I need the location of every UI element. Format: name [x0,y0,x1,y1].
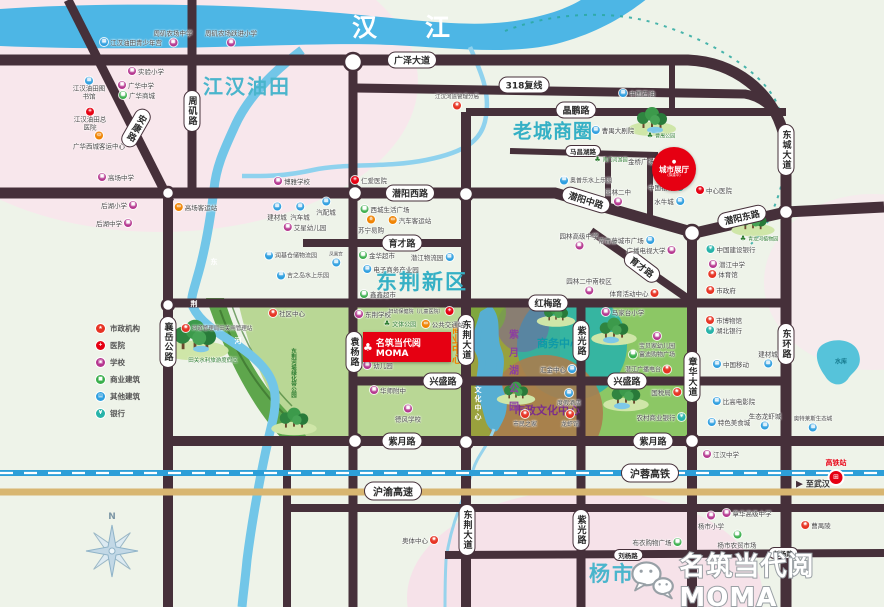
poi-label: 体育馆 [718,269,738,279]
poi-gov: 潜江广播电台★ [625,365,671,374]
poi-bus: ▭广华西城客运中心 [73,132,125,151]
area-label: 汉江 [352,8,498,44]
direction-arrow-icon: ▶ [796,479,803,489]
area-label: 河 [235,336,242,346]
poi-park: ♣文体公园 [384,320,416,329]
gov-icon: ★ [706,286,714,294]
park-icon: ♣ [384,321,390,328]
poi-com: ■广华商城 [119,90,155,100]
poi-oth: 建材城▤ [758,349,778,368]
poi-label: 周矶农场中学 [154,28,193,38]
area-label: 文化中心 [473,386,483,422]
poi-label: 杨市小学 [698,521,724,531]
sch-icon: ▣ [404,405,412,413]
poi-oth: 潜江物流园▤ [411,252,454,262]
poi-sch: ▣章华高级中学 [723,508,772,518]
legend-item: ★市政机构 [96,320,140,337]
poi-label: 公共交通站 [432,319,465,329]
poi-hosp: +江汉油田总医院 [71,108,109,133]
road-label: 育才路 [381,235,422,252]
poi-oth: ▤汽车城 [290,203,310,222]
oth-icon: ▤ [296,203,304,211]
poi-label: 市政府 [716,285,736,295]
poi-label: 奥体中心 [402,535,428,545]
direction-to-wuhan: ▶ 至武汉 [796,479,830,490]
poi-gov: 江汉河道管理分局★ [435,93,479,110]
road-label: 紫月路 [632,433,673,450]
oth-icon: ▤ [332,259,340,267]
road-label: 紫光路 [573,320,590,362]
poi-label: 广华商城 [129,90,155,100]
legend-label: 市政机构 [110,323,140,334]
gov-icon: ★ [706,316,714,324]
poi-sch: 园林二中南校区▣ [566,276,612,295]
bank-icon: ¥ [707,245,715,253]
oth-icon: ▤ [646,236,654,244]
poi-label: 湖北银行 [716,325,742,335]
poi-label: 金华超市 [369,250,395,260]
poi-gov: ★龙虾馆 [561,410,579,428]
poi-label: 比高电影院 [723,396,756,406]
poi-gov: ★市政府 [706,285,736,295]
road-label: 东城大道 [778,124,795,176]
poi-label: 华师附中 [380,385,406,395]
legend-item: ▣学校 [96,354,140,371]
poi-oth: ▤吉之岛水上乐园 [277,271,329,280]
oth-icon: ▤ [100,38,108,46]
poi-sch: 园林高级中学▣ [560,231,599,250]
poi-label: 园林二中南校区 [566,276,612,286]
org-icon: ⌂ [367,216,375,224]
hsr-station-label: 高铁站 [826,458,847,468]
poi-oth: ▤特色美食城 [708,417,751,427]
brand-watermark: 名筑当代阅MOMA [628,546,884,607]
sch-icon: ▣ [274,177,282,185]
poi-label: 金桥广场 [628,156,654,166]
poi-label: 中国移动 [723,359,749,369]
poi-park: ♣曹禺公园 [647,133,675,140]
poi-label: 青龙河植物园 [748,236,778,243]
poi-bank: ¥中国建设银行 [707,244,756,254]
poi-gov: ★市民之家 [513,410,537,428]
poi-label: 富迪购物广场 [639,350,675,359]
poi-label: 吉之岛水上乐园 [287,271,329,280]
poi-gov: ★河道管理局田关闸管理站 [182,324,253,332]
sch-icon: ▣ [707,512,715,520]
park-icon: ♣ [594,157,600,164]
poi-label: 汽配城 [316,207,336,217]
poi-sch: ▣江汉中学 [703,449,739,459]
poi-oth: ▤江汉油田图书馆 [70,77,108,102]
legend-label: 学校 [110,357,125,368]
hosp-icon: + [446,307,454,315]
poi-sch: ▣杨市小学 [698,512,724,531]
area-label: 紫月湖公园 [505,329,520,419]
legend-label: 商业建筑 [110,374,140,385]
sch-icon: ▣ [284,223,292,231]
oth-icon: ▤ [277,271,285,279]
road-label: 潜阳西路 [385,185,435,202]
poi-gov: ★社区中心 [269,308,305,318]
hosp-icon: + [351,176,359,184]
poi-label: 东荆学校 [365,309,391,319]
poi-label: 体育活动中心 [610,288,649,298]
oth-icon: ▤ [560,176,568,184]
sch-legend-icon: ▣ [96,358,105,367]
poi-label: 龙虾馆 [561,419,579,428]
poi-bank: 农村商业银行¥ [637,412,686,422]
poi-oth: 水牛城▤ [654,196,684,206]
road-label: 兴盛路 [606,373,647,390]
poi-bus: ▭公共交通站 [422,319,465,329]
oth-icon: ▤ [809,424,817,432]
oth-icon: ▤ [85,77,93,85]
poi-label: 奥普乐水上乐园 [570,176,612,185]
poi-oth: ▤曹禺大剧院 [592,125,635,135]
poi-label: 广播电视大学 [627,245,666,255]
com-icon: ■ [359,251,367,259]
oth-legend-icon: ▤ [96,392,105,401]
poi-label: 中国石油 [629,88,655,98]
poi-sch: ▣艾星幼儿园 [284,222,327,232]
area-label: 老城商圈 [513,117,593,144]
poi-com: ■富迪购物广场 [629,350,675,359]
com-icon: ■ [733,531,741,539]
poi-label: 生态龙虾城 [749,411,782,421]
poi-label: 农村商业银行 [637,412,676,422]
road-label: 红梅路 [527,295,568,312]
poi-sch: ▣马家台小学 [602,307,645,317]
poi-label: 章华高级中学 [733,508,772,518]
poi-gov: ★曹禺陵 [801,520,831,530]
poi-label: 德风学校 [395,414,421,424]
poi-sch: ▣东荆学校 [355,309,391,319]
oth-icon: ▤ [265,251,273,259]
poi-label: 江汉中学 [713,449,739,459]
area-label: 东荆河堤绿化带公园 [289,348,297,398]
poi-sch: ▣博雅学校 [274,176,310,186]
sch-icon: ▣ [709,260,717,268]
poi-label: 汽车城 [290,212,310,222]
poi-hosp: +中心医院 [696,185,732,195]
park-icon: ♣ [740,236,746,243]
poi-label: 田关水利旅游度假区 [188,356,238,364]
legend-item: ▤其他建筑 [96,388,140,405]
poi-label: 园林二中 [605,187,631,197]
sch-icon: ▣ [118,81,126,89]
oth-icon: ▤ [619,89,627,97]
compass-north-label: N [108,512,116,522]
legend-label: 其他建筑 [110,391,140,402]
project-name: 名筑当代阅MOMA [376,336,451,359]
poi-gov: 体育活动中心★ [610,288,659,298]
poi-label: 广华西城客运中心 [73,141,125,151]
project-logo-icon: ♣ [363,342,373,353]
poi-label: 后湖中学 [96,218,122,228]
sch-icon: ▣ [575,242,583,250]
hosp-legend-icon: + [96,341,105,350]
poi-label: 实验小学 [138,66,164,76]
poi-label: 电子商务产业园 [373,264,419,274]
sch-icon: ▣ [227,39,235,47]
poi-label: 潜江中学 [719,259,745,269]
poi-label: 文体公园 [392,320,416,329]
poi-label: 江汉河道管理分局 [435,93,479,101]
bus-icon: ▭ [175,203,183,211]
poi-label: 博雅学校 [284,176,310,186]
sch-icon: ▣ [668,246,676,254]
gov-icon: ★ [801,521,809,529]
poi-label: 国税局 [651,387,671,397]
poi-hosp: +仁爱医院 [351,175,387,185]
poi-label: 西城生活广场 [371,204,410,214]
gov-icon: ★ [673,388,681,396]
poi-sch: 后湖中学▣ [96,218,132,228]
oth-icon: ▤ [761,422,769,430]
poi-label: 曹禺公园 [655,133,675,140]
poi-label: 鑫鑫超市 [370,289,396,299]
road-label: 沪渝高速 [364,482,422,501]
train-station-icon: ⊞ [828,469,845,486]
gov-icon: ★ [269,309,277,317]
poi-sch: 园林二中▣ [605,187,631,206]
poi-gov: ★市博物馆 [706,315,742,325]
poi-label: 马家台小学 [612,307,645,317]
poi-bank: ¥湖北银行 [706,325,742,335]
poi-com: ■金华超市 [359,250,395,260]
bus-icon: ▭ [95,132,103,140]
road-label: 晶鹏路 [555,102,596,119]
poi-label: 中国建设银行 [717,244,756,254]
legend: ★市政机构+医院▣学校■商业建筑▤其他建筑¥银行 [96,320,140,422]
legend-item: ■商业建筑 [96,371,140,388]
sch-icon: ▣ [585,287,593,295]
com-icon: ■ [119,91,127,99]
poi-hosp: 妇幼保健院（儿童医院）+ [388,307,453,315]
gov-icon: ★ [708,270,716,278]
poi-oth: ▤中国石油 [619,88,655,98]
poi-sch: ▣潜江中学 [709,259,745,269]
sch-icon: ▣ [614,198,622,206]
oth-icon: ▤ [445,253,453,261]
poi-oth: 凤凰宫▤ [329,252,343,267]
road-label: 兴盛路 [422,373,463,390]
sch-icon: ▣ [355,310,363,318]
oth-icon: ▤ [713,360,721,368]
gov-icon: ★ [430,536,438,544]
road-label: 东环路 [778,323,795,365]
oth-icon: ▤ [565,389,573,397]
com-icon: ■ [629,350,637,358]
area-label: 水库 [835,357,847,366]
gov-legend-icon: ★ [96,324,105,333]
poi-label: 妇幼保健院（儿童医院） [388,308,443,315]
poi-oth: 奥特莱斯生态城▤ [794,415,833,432]
poi-label: 高场客运站 [185,202,218,212]
road-label: 广泽大道 [387,52,437,69]
poi-bus: ▭高场客运站 [175,202,218,212]
road-label: 周矶路 [184,90,201,132]
poi-label: 奥特莱斯生态城 [794,415,833,423]
poi-sch: ▣高场中学 [98,172,134,182]
poi-park: ♣南门河游园 [594,157,627,164]
poi-label: 河道管理局田关闸管理站 [192,324,253,332]
poi-label: 苏宁易购 [358,225,384,235]
sch-icon: ▣ [653,332,661,340]
oth-icon: ▤ [363,265,371,273]
poi-sch: 后湖小学▣ [101,200,137,210]
road-label: 沪蓉高铁 [621,464,679,483]
project-banner: ♣ 名筑当代阅MOMA [363,332,451,362]
poi-sch: 广播电视大学▣ [627,245,676,255]
sch-icon: ▣ [602,308,610,316]
road-label: 紫光路 [573,509,590,551]
oth-icon: ▤ [592,126,600,134]
poi-park: 田关水利旅游度假区 [188,356,238,364]
gov-icon: ★ [566,410,574,418]
bank-icon: ¥ [706,326,714,334]
legend-label: 银行 [110,408,125,419]
bank-legend-icon: ¥ [96,409,105,418]
poi-label: 曹禺陵 [811,520,831,530]
road-label: 东荆大道 [459,504,476,556]
poi-label: 水牛城 [654,196,674,206]
poi-label: 建材城 [758,349,778,359]
gov-icon: ★ [663,365,671,373]
poi-label: 潜江物流园 [411,252,444,262]
exhibition-subtitle: (拟建中) [667,174,680,178]
area-label: 东 [211,257,218,267]
road-label: 紫月路 [381,433,422,450]
poi-park: ♣青龙河植物园 [740,236,778,243]
poi-bus: ▭汽车客运站 [389,215,432,225]
road-label: 襄岳公路 [160,316,177,368]
road-label: 袁杨路 [346,331,363,373]
sch-icon: ▣ [129,201,137,209]
bus-icon: ▭ [422,320,430,328]
oth-icon: ▤ [708,418,716,426]
sch-icon: ▣ [128,67,136,75]
gov-icon: ★ [453,102,461,110]
poi-oth: ▤度假酒店 [557,389,581,407]
poi-label: 仁爱医院 [361,175,387,185]
bank-icon: ¥ [678,413,686,421]
poi-label: 汽车客运站 [399,215,432,225]
poi-label: 江汉油田总医院 [71,117,109,133]
poi-label: 凤凰宫 [329,252,343,258]
park-icon: ♣ [647,133,653,140]
poi-label: 高场中学 [108,172,134,182]
poi-com: ■鑫鑫超市 [360,289,396,299]
poi-label: 市民之家 [513,419,537,428]
legend-label: 医院 [110,340,125,351]
oth-icon: ▤ [322,198,330,206]
poi-sch: ▣广华中学 [118,80,154,90]
poi-label: 社区中心 [279,308,305,318]
area-label: 荆 [191,299,198,309]
wechat-bubbles-icon [628,553,675,607]
area-label: 江汉油田 [203,71,291,100]
poi-oth: ▤奥普乐水上乐园 [560,176,612,185]
poi-label: 润基仓储物流园 [275,251,317,260]
legend-item: +医院 [96,337,140,354]
city-exhibition-hall-badge: ● 城市展厅 (拟建中) [652,147,696,191]
oth-icon: ▤ [764,360,772,368]
direction-label: 至武汉 [806,479,830,490]
poi-oth: ▤电子商务产业园 [363,264,419,274]
com-icon: ■ [360,290,368,298]
map-root: ★市政机构+医院▣学校■商业建筑▤其他建筑¥银行 周矶农场中学▣周矶农场跃进小学… [0,0,884,607]
poi-label: 南门河游园 [603,157,628,164]
poi-oth: 汇金中心▤ [540,364,576,374]
brand-watermark-text: 名筑当代阅MOMA [679,546,884,607]
poi-label: 周矶农场跃进小学 [205,28,257,38]
bus-icon: ▭ [389,216,397,224]
poi-label: 汇金中心 [540,364,566,374]
legend-item: ¥银行 [96,405,140,422]
sch-icon: ▣ [98,173,106,181]
poi-label: 曹禺大剧院 [602,125,635,135]
poi-sch: ▣德风学校 [395,405,421,424]
oth-icon: ▤ [713,397,721,405]
poi-sch: ▣宝贝家幼儿园 [639,332,675,350]
hosp-icon: + [696,186,704,194]
road-label: 318复线 [499,77,550,94]
com-legend-icon: ■ [96,375,105,384]
gov-icon: ★ [521,410,529,418]
com-icon: ■ [674,538,682,546]
road-label: 章华大道 [684,351,701,403]
oth-icon: ▤ [568,365,576,373]
poi-oth: ▤汽配城 [316,198,336,217]
poi-com: ■西城生活广场 [361,204,410,214]
poi-oth: ▤比高电影院 [713,396,756,406]
poi-label: 市博物馆 [716,315,742,325]
poi-label: 中心医院 [706,185,732,195]
poi-gov: 国税局★ [651,387,681,397]
poi-sch: ▣实验小学 [128,66,164,76]
poi-label: 特色美食城 [718,417,751,427]
poi-label: 园林高级中学 [560,231,599,241]
poi-label: 江汉油田图书馆 [70,86,108,102]
poi-label: 后湖小学 [101,200,127,210]
poi-sch: ▣华师附中 [370,385,406,395]
oth-icon: ▤ [676,197,684,205]
poi-oth: ▤中国移动 [713,359,749,369]
gov-icon: ★ [182,324,190,332]
poi-oth: 常青藤城市广场▤ [598,235,654,245]
poi-label: 艾星幼儿园 [294,222,327,232]
gov-icon: ★ [651,289,659,297]
poi-sch: 周矶农场跃进小学▣ [205,28,257,47]
poi-org: ⌂苏宁易购 [358,216,384,235]
poi-gov: ★体育馆 [708,269,738,279]
poi-gov: 奥体中心★ [402,535,438,545]
poi-label: 常青藤城市广场 [598,235,644,245]
oth-icon: ▤ [273,203,281,211]
sch-icon: ▣ [703,450,711,458]
com-icon: ■ [361,205,369,213]
compass-icon [84,523,140,579]
poi-label: 建材城 [267,212,287,222]
sch-icon: ▣ [169,39,177,47]
poi-label: 度假酒店 [557,398,581,407]
sch-icon: ▣ [370,386,378,394]
poi-label: 潜江广播电台 [625,365,661,374]
poi-oth: ▤润基仓储物流园 [265,251,317,260]
sch-icon: ▣ [363,361,371,369]
sch-icon: ▣ [124,219,132,227]
